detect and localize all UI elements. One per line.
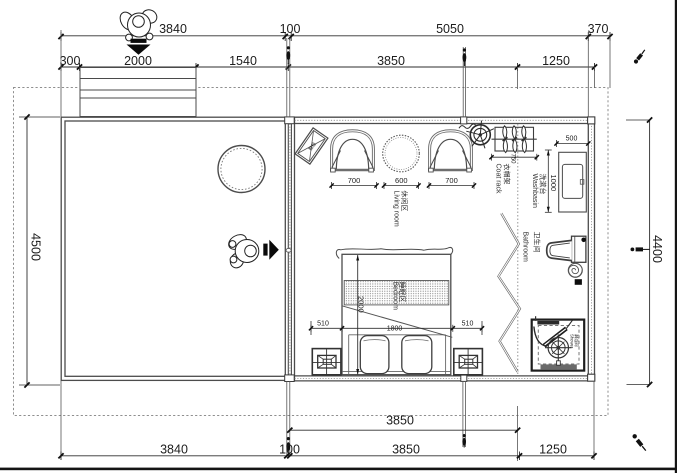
svg-text:510: 510	[462, 321, 474, 328]
svg-text:700: 700	[348, 176, 361, 185]
svg-text:510: 510	[317, 321, 329, 328]
svg-text:Washbasin: Washbasin	[531, 174, 538, 208]
svg-text:衣帽架: 衣帽架	[503, 164, 512, 185]
svg-text:1540: 1540	[229, 54, 257, 68]
svg-text:休闲区: 休闲区	[400, 191, 409, 212]
svg-text:370: 370	[588, 22, 609, 36]
svg-text:300: 300	[60, 54, 81, 68]
svg-text:2000: 2000	[357, 296, 366, 313]
svg-text:卫生间: 卫生间	[533, 232, 542, 253]
svg-text:4400: 4400	[650, 235, 664, 263]
svg-text:3850: 3850	[377, 54, 405, 68]
svg-text:3850: 3850	[392, 443, 420, 457]
svg-text:500: 500	[566, 136, 578, 143]
svg-text:5050: 5050	[436, 22, 464, 36]
svg-text:1250: 1250	[542, 54, 570, 68]
svg-text:Bedroom: Bedroom	[392, 282, 399, 311]
svg-text:3850: 3850	[386, 414, 414, 428]
svg-text:2000: 2000	[124, 54, 152, 68]
svg-text:4500: 4500	[29, 233, 43, 261]
svg-text:600: 600	[395, 176, 408, 185]
svg-text:1250: 1250	[539, 443, 567, 457]
svg-text:1000: 1000	[549, 175, 558, 192]
svg-text:Coat rack: Coat rack	[495, 164, 502, 194]
svg-text:洗漱台: 洗漱台	[539, 174, 548, 195]
svg-text:100: 100	[279, 443, 300, 457]
svg-text:Living room: Living room	[393, 191, 400, 227]
svg-text:Shower: Shower	[570, 334, 575, 349]
svg-text:3840: 3840	[160, 443, 188, 457]
svg-text:Bathroom: Bathroom	[522, 232, 529, 263]
svg-text:1800: 1800	[387, 326, 403, 333]
svg-text:3840: 3840	[159, 22, 187, 36]
svg-text:700: 700	[445, 176, 458, 185]
svg-text:100: 100	[280, 22, 301, 36]
